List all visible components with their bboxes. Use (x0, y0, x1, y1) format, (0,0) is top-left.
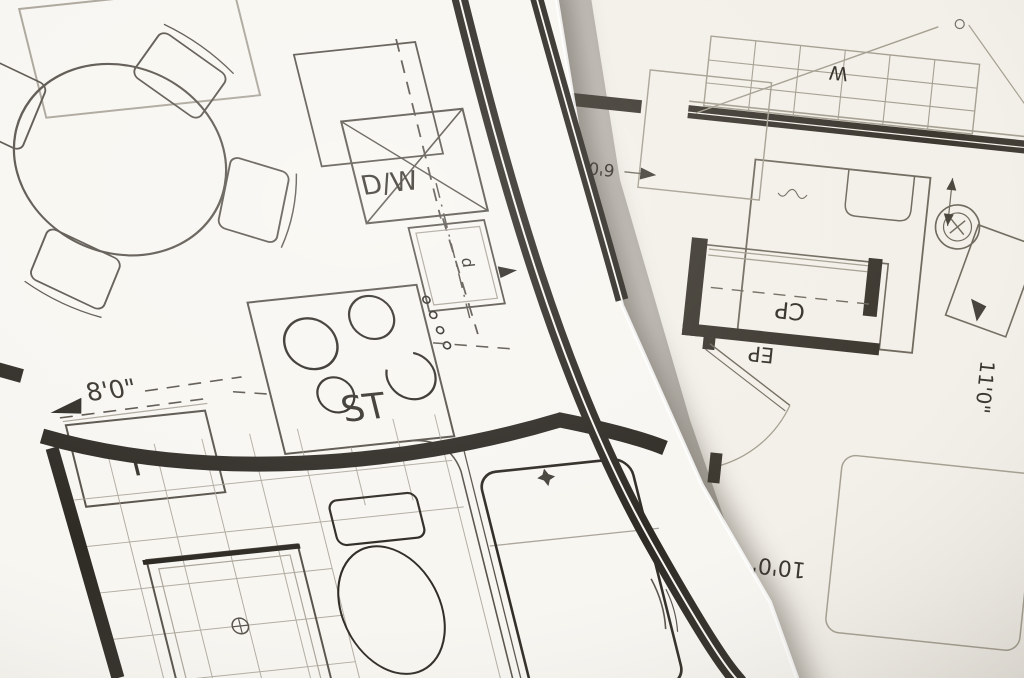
blueprint-photo: W CP EP (0, 0, 1024, 678)
photo-vignette (0, 0, 1024, 678)
blueprint-scene: W CP EP (0, 0, 1024, 678)
